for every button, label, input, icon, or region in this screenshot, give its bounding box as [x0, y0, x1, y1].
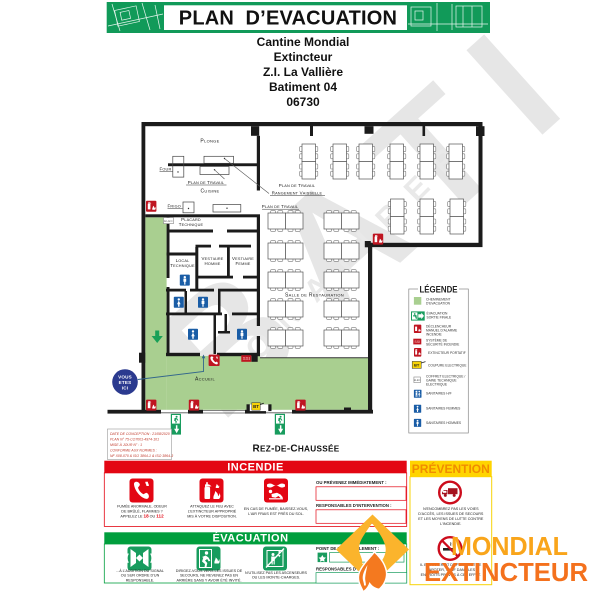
- svg-text:N’UTILISEZ PAS LES ASCENSEURS: N’UTILISEZ PAS LES ASCENSEURS: [245, 571, 308, 575]
- svg-text:MISE À JOUR N° : 1: MISE À JOUR N° : 1: [110, 443, 142, 447]
- svg-text:LÉGENDE: LÉGENDE: [420, 283, 458, 294]
- svg-text:FUMÉE ANORMALE, ODEUR: FUMÉE ANORMALE, ODEUR: [117, 504, 167, 509]
- svg-text:Batiment 04: Batiment 04: [269, 80, 337, 94]
- svg-text:FOUR: FOUR: [160, 167, 172, 172]
- svg-text:L’EXTINCTEUR APPROPRIÉ: L’EXTINCTEUR APPROPRIÉ: [188, 509, 237, 514]
- svg-text:D’EVACUATION: D’EVACUATION: [426, 301, 451, 305]
- svg-text:ÉVACUATION: ÉVACUATION: [212, 532, 288, 545]
- svg-text:OU SUR ORDRE D’UN: OU SUR ORDRE D’UN: [121, 574, 160, 578]
- svg-text:...À L’AUDITION DU SIGNAL: ...À L’AUDITION DU SIGNAL: [116, 569, 164, 573]
- svg-text:PLAN DE TRAVAIL: PLAN DE TRAVAIL: [262, 204, 298, 209]
- svg-text:EN CAS DE FUMÉE, BAISSEZ-VOUS,: EN CAS DE FUMÉE, BAISSEZ-VOUS,: [244, 506, 308, 511]
- svg-text:PLAN N° 75-CO7001-4974-101: PLAN N° 75-CO7001-4974-101: [110, 438, 159, 442]
- svg-text:RESPONSABLE.: RESPONSABLE.: [126, 578, 155, 582]
- svg-text:PLAN DE TRAVAIL: PLAN DE TRAVAIL: [279, 183, 315, 188]
- svg-text:INCENDIE: INCENDIE: [227, 462, 284, 474]
- svg-text:L’AIR FRAIS EST PRÈS DU SOL.: L’AIR FRAIS EST PRÈS DU SOL.: [248, 511, 304, 516]
- svg-text:REZ-DE-CHAUSSÉE: REZ-DE-CHAUSSÉE: [252, 444, 339, 455]
- svg-text:MONDIAL: MONDIAL: [451, 533, 568, 561]
- svg-text:ETES: ETES: [119, 380, 132, 385]
- svg-text:RANGEMENT VAISSELLE: RANGEMENT VAISSELLE: [272, 190, 323, 195]
- svg-text:COUPURE ELECTRIQUE: COUPURE ELECTRIQUE: [428, 363, 467, 367]
- svg-text:ICI: ICI: [122, 385, 128, 390]
- svg-text:Z.I. La Vallière: Z.I. La Vallière: [263, 65, 343, 79]
- svg-text:OU PRÉVENEZ IMMÉDIATEMENT :: OU PRÉVENEZ IMMÉDIATEMENT :: [316, 480, 387, 485]
- svg-text:Extincteur: Extincteur: [274, 50, 333, 64]
- svg-text:ELEC: ELEC: [414, 378, 421, 382]
- svg-text:VOUS: VOUS: [118, 375, 132, 380]
- svg-text:DATE DE CONCEPTION : 21/08/202: DATE DE CONCEPTION : 21/08/2020: [110, 432, 170, 436]
- svg-text:PRÉVENTION: PRÉVENTION: [412, 462, 490, 476]
- svg-text:TECHNIQUE: TECHNIQUE: [179, 222, 204, 227]
- svg-text:BT: BT: [414, 363, 420, 368]
- svg-text:SSI: SSI: [414, 340, 420, 344]
- svg-text:VESTIAIRE: VESTIAIRE: [232, 256, 254, 261]
- svg-text:HOMME: HOMME: [205, 261, 221, 266]
- svg-text:D’ACCÈS, LES ISSUES DE SECOURS: D’ACCÈS, LES ISSUES DE SECOURS: [418, 511, 484, 516]
- svg-text:TECHNIQUE: TECHNIQUE: [170, 263, 195, 268]
- svg-text:SÉCURITÉ INCENDIE: SÉCURITÉ INCENDIE: [426, 341, 460, 346]
- svg-text:OU LES MONTE-CHARGES.: OU LES MONTE-CHARGES.: [252, 576, 300, 580]
- svg-text:SECOURS, NE REVENEZ PAS EN: SECOURS, NE REVENEZ PAS EN: [180, 574, 238, 578]
- svg-text:ELECTRIQUE: ELECTRIQUE: [426, 382, 448, 386]
- svg-text:NF X08-070 & ISO 3864-1 & ISO: NF X08-070 & ISO 3864-1 & ISO 3864-3: [110, 454, 173, 458]
- svg-text:SANITAIRES FEMMES: SANITAIRES FEMMES: [426, 407, 461, 411]
- svg-text:ET LES MOYENS DE LUTTE CONTRE: ET LES MOYENS DE LUTTE CONTRE: [418, 517, 484, 521]
- svg-text:CONFORME AUX NORMES :: CONFORME AUX NORMES :: [110, 449, 157, 453]
- svg-text:PLAN DE TRAVAIL: PLAN DE TRAVAIL: [188, 180, 224, 185]
- svg-text:ELEC: ELEC: [164, 219, 173, 223]
- svg-text:INCENDIE: INCENDIE: [426, 332, 443, 336]
- svg-text:SANITAIRES HOMMES: SANITAIRES HOMMES: [426, 421, 462, 425]
- svg-text:06730: 06730: [286, 95, 320, 109]
- svg-text:SORTIE FINALE: SORTIE FINALE: [427, 316, 452, 320]
- svg-text:SANITAIRES H/F: SANITAIRES H/F: [426, 392, 452, 396]
- svg-text:ATTAQUEZ LE FEU AVEC: ATTAQUEZ LE FEU AVEC: [190, 505, 234, 509]
- svg-text:RESPONSABLES D’INTERVENTION :: RESPONSABLES D’INTERVENTION :: [316, 503, 392, 508]
- svg-text:PLAN D’EVACUATION: PLAN D’EVACUATION: [179, 8, 397, 30]
- svg-text:LOCAL: LOCAL: [176, 258, 190, 263]
- svg-text:FRIGO: FRIGO: [168, 204, 181, 209]
- svg-text:MIS À VOTRE DISPOSITION.: MIS À VOTRE DISPOSITION.: [187, 515, 237, 519]
- svg-text:N’ENCOMBREZ PAS LES VOIES: N’ENCOMBREZ PAS LES VOIES: [423, 507, 479, 511]
- svg-text:ARRIÈRE SANS Y AVOIR ÉTÉ INVIT: ARRIÈRE SANS Y AVOIR ÉTÉ INVITÉ.: [177, 577, 242, 582]
- svg-text:L’INCENDIE.: L’INCENDIE.: [440, 522, 461, 526]
- svg-text:PLACARD: PLACARD: [181, 217, 201, 222]
- svg-text:DIRIGEZ-VOUS VERS LES ISSUES D: DIRIGEZ-VOUS VERS LES ISSUES DE: [176, 569, 243, 573]
- svg-text:APPELEZ LE 18 OU 112: APPELEZ LE 18 OU 112: [120, 514, 164, 519]
- svg-text:Cantine Mondial: Cantine Mondial: [257, 35, 350, 49]
- svg-text:EXTINCTEUR: EXTINCTEUR: [424, 559, 588, 587]
- svg-text:VESTIAIRE: VESTIAIRE: [201, 256, 223, 261]
- svg-text:EXTINCTEUR PORTATIF: EXTINCTEUR PORTATIF: [428, 351, 466, 355]
- svg-text:FEMME: FEMME: [235, 261, 250, 266]
